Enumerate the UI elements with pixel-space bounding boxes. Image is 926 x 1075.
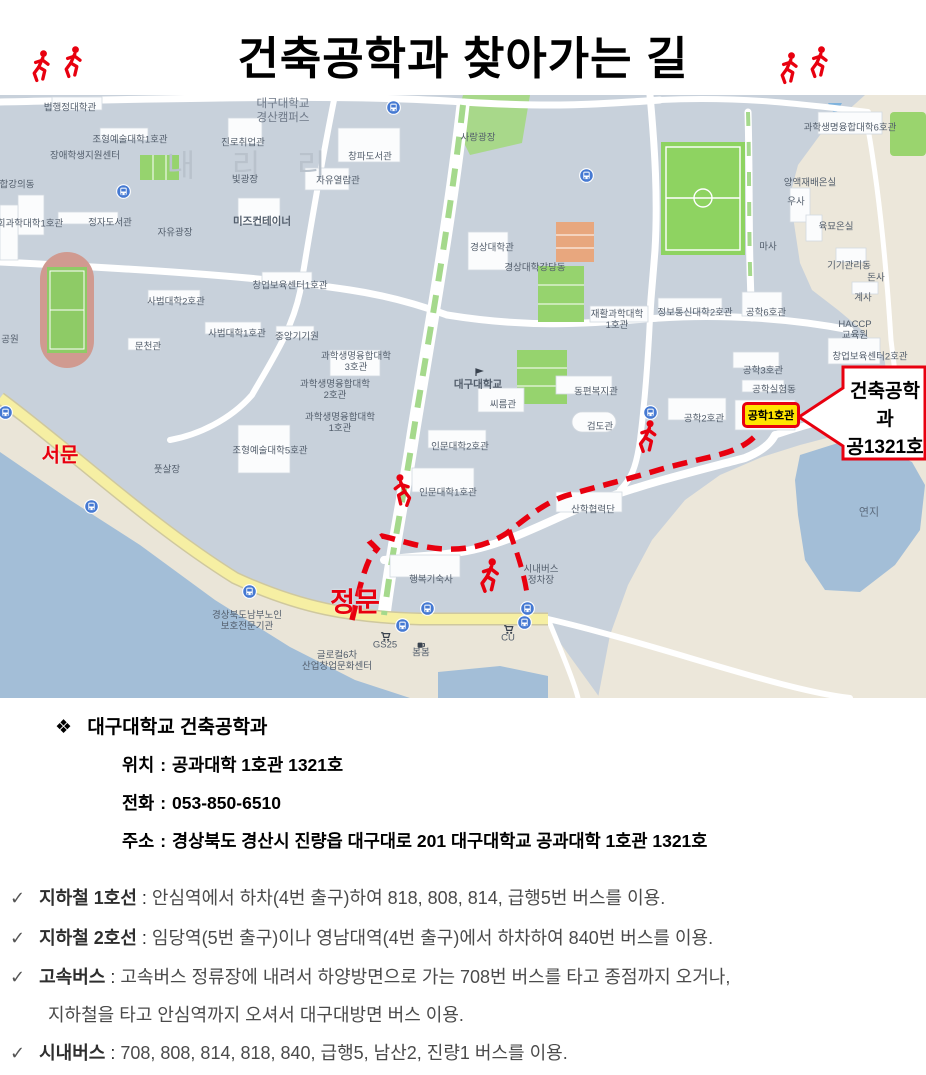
runner-icon	[774, 48, 804, 88]
diamond-bullet-icon: ❖	[55, 717, 72, 738]
info-row-phone: 전화:053-850-6510	[122, 790, 281, 815]
check-icon: ✓	[10, 888, 25, 908]
transit-express-bus-cont: 지하철을 타고 안심역까지 오셔서 대구대방면 버스 이용.	[48, 1001, 464, 1027]
check-icon: ✓	[10, 967, 25, 987]
info-row-address: 주소:경상북도 경산시 진량읍 대구대로 201 대구대학교 공과대학 1호관 …	[122, 828, 707, 853]
campus-map: 대구대학교 경산캠퍼스 내 리 리 법행정대학관조형예술대학1호관장애학생지원센…	[0, 95, 926, 698]
green-corner	[890, 112, 926, 156]
check-icon: ✓	[10, 1043, 25, 1063]
main-gate-label: 정문	[330, 581, 380, 620]
transit-express-bus: ✓고속버스:고속버스 정류장에 내려서 하양방면으로 가는 708번 버스를 타…	[10, 963, 730, 989]
west-gate-label: 서문	[42, 439, 79, 468]
department-heading: ❖ 대구대학교 건축공학과	[55, 712, 267, 739]
transit-city-bus: ✓시내버스:708, 808, 814, 818, 840, 급행5, 남산2,…	[10, 1039, 568, 1065]
transit-subway1: ✓지하철 1호선:안심역에서 하차(4번 출구)하여 818, 808, 814…	[10, 884, 665, 910]
transit-subway2: ✓지하철 2호선:임당역(5번 출구)이나 영남대역(4번 출구)에서 하차하여…	[10, 924, 713, 950]
header: 건축공학과 찾아가는 길	[0, 0, 926, 95]
building-highlight-eng1: 공학1호관	[742, 402, 800, 428]
check-icon: ✓	[10, 928, 25, 948]
department-heading-text: 대구대학교 건축공학과	[87, 717, 267, 738]
area-name-faint: 내 리 리	[167, 141, 340, 186]
campus-name-label: 대구대학교 경산캠퍼스	[257, 97, 310, 125]
map-graphics	[0, 95, 926, 698]
callout-text: 건축공학과 공1321호	[844, 378, 926, 462]
direction-poster: 건축공학과 찾아가는 길	[0, 0, 926, 1075]
runner-icon	[804, 42, 834, 82]
info-row-location: 위치:공과대학 1호관 1321호	[122, 752, 343, 777]
